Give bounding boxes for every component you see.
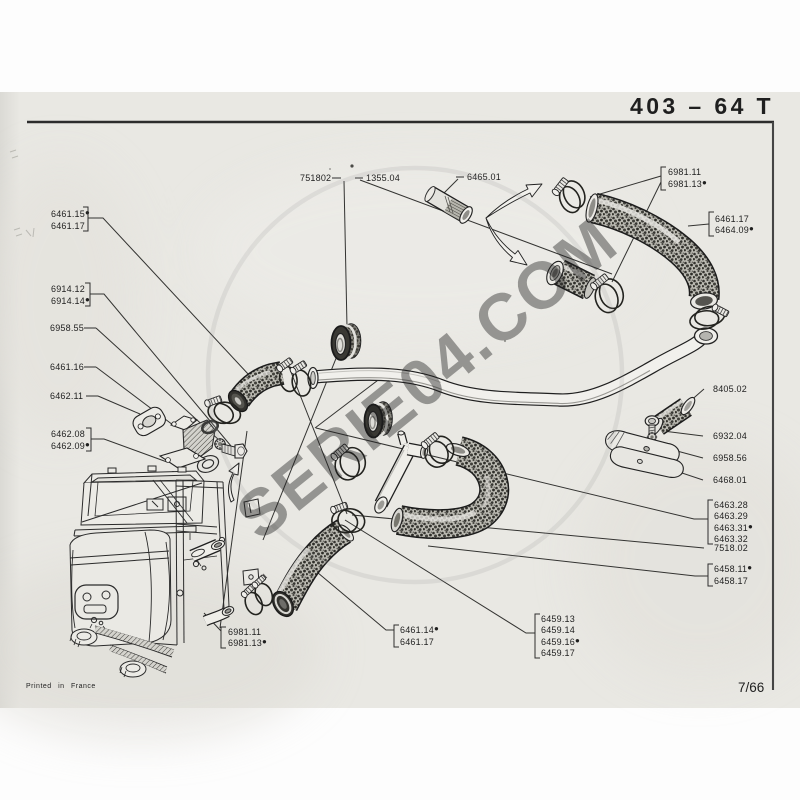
svg-text:6458.11●: 6458.11● [714,563,752,574]
svg-text:6462.08: 6462.08 [51,429,85,439]
svg-text:6458.17: 6458.17 [714,576,748,586]
svg-text:6461.17: 6461.17 [715,214,749,224]
svg-text:7518.02: 7518.02 [714,543,748,553]
svg-text:6462.11: 6462.11 [50,391,83,401]
svg-text:6463.31●: 6463.31● [714,522,753,533]
svg-text:6958.56: 6958.56 [713,453,747,463]
svg-text:6459.16●: 6459.16● [541,636,580,647]
svg-text:6914.12: 6914.12 [51,284,85,294]
svg-text:6932.04: 6932.04 [713,431,747,441]
svg-text:6462.09●: 6462.09● [51,440,90,451]
svg-text:6459.17: 6459.17 [541,648,575,658]
svg-text:403 – 64 T: 403 – 64 T [630,93,774,119]
svg-text:6463.28: 6463.28 [714,500,748,510]
svg-text:6459.13: 6459.13 [541,614,575,624]
svg-text:8405.02: 8405.02 [713,384,747,394]
svg-text:6981.11: 6981.11 [668,167,701,177]
svg-text:6468.01: 6468.01 [713,475,747,485]
svg-text:6461.17: 6461.17 [51,221,85,231]
svg-text:6463.29: 6463.29 [714,511,748,521]
svg-text:751802: 751802 [300,173,331,183]
svg-text:6914.14●: 6914.14● [51,295,90,306]
svg-text:Printed in France: Printed in France [26,683,96,690]
svg-text:7/66: 7/66 [738,680,764,695]
svg-text:6461.16: 6461.16 [50,362,84,372]
svg-text:6981.13●: 6981.13● [668,178,707,189]
svg-text:6461.17: 6461.17 [400,637,434,647]
svg-text:6958.55: 6958.55 [50,323,84,333]
svg-text:6461.14●: 6461.14● [400,624,439,635]
svg-text:6981.13●: 6981.13● [228,637,267,648]
svg-text:6464.09●: 6464.09● [715,224,754,235]
svg-text:6461.15●: 6461.15● [51,208,90,219]
svg-text:6981.11: 6981.11 [228,627,261,637]
svg-text:6459.14: 6459.14 [541,625,575,635]
